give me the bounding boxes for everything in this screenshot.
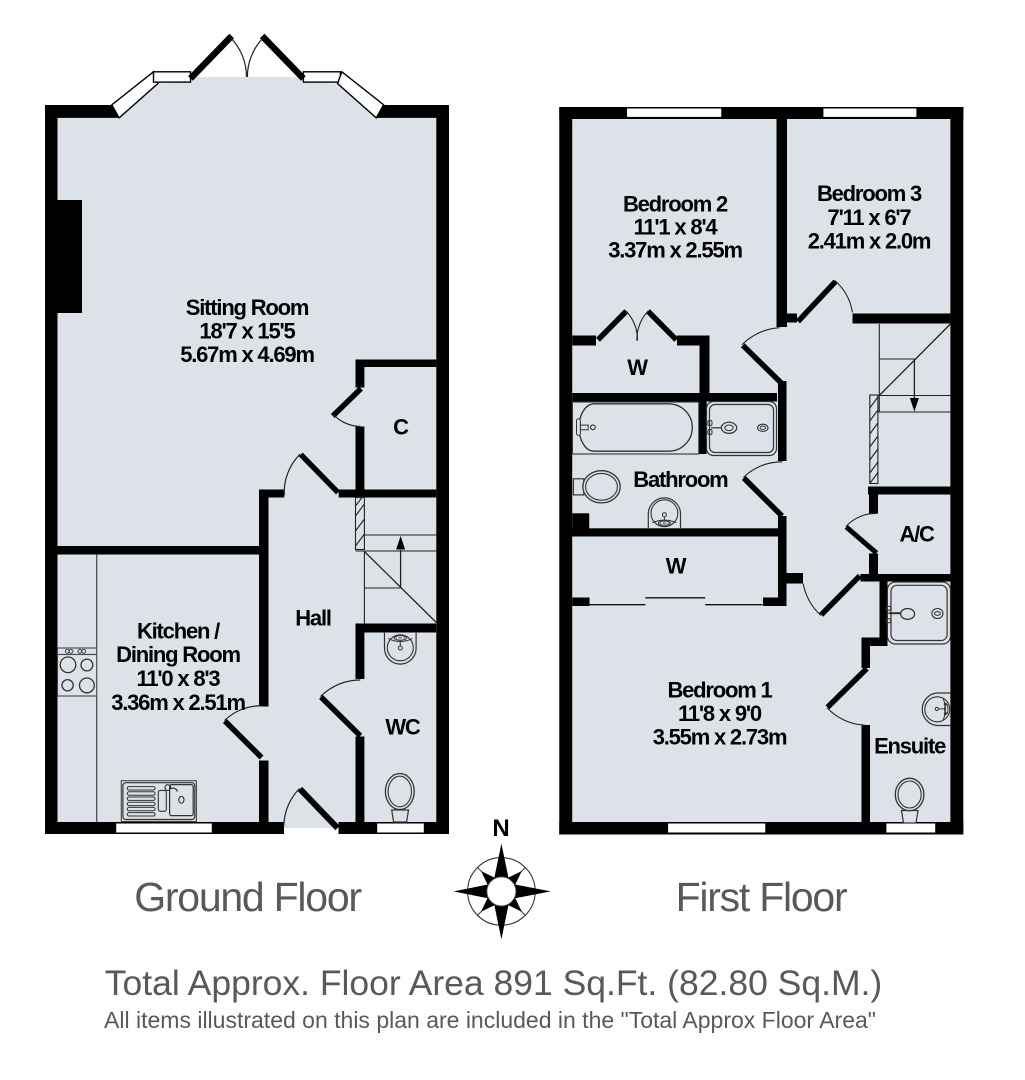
svg-text:11'1 x 8'4: 11'1 x 8'4 [634, 215, 719, 240]
svg-text:Bathroom: Bathroom [633, 467, 728, 492]
svg-text:Bedroom 1: Bedroom 1 [667, 678, 772, 703]
svg-text:2.41m x 2.0m: 2.41m x 2.0m [808, 229, 931, 254]
svg-text:Total Approx. Floor Area 891 S: Total Approx. Floor Area 891 Sq.Ft. (82.… [105, 963, 882, 1003]
svg-text:Dining Room: Dining Room [116, 642, 240, 667]
svg-text:3.36m x 2.51m: 3.36m x 2.51m [111, 690, 245, 715]
svg-text:5.67m x 4.69m: 5.67m x 4.69m [180, 342, 314, 367]
svg-text:Kitchen /: Kitchen / [137, 619, 220, 644]
svg-text:11'8 x 9'0: 11'8 x 9'0 [678, 701, 762, 726]
svg-text:W: W [666, 554, 687, 579]
svg-text:3.37m x 2.55m: 3.37m x 2.55m [608, 238, 742, 263]
svg-text:N: N [492, 815, 509, 842]
svg-text:7'11 x 6'7: 7'11 x 6'7 [828, 205, 912, 230]
svg-text:Bedroom 3: Bedroom 3 [817, 181, 922, 206]
svg-text:W: W [627, 355, 648, 380]
svg-text:3.55m x 2.73m: 3.55m x 2.73m [653, 725, 787, 750]
svg-text:All items illustrated on this: All items illustrated on this plan are i… [104, 1007, 876, 1033]
svg-text:Bedroom 2: Bedroom 2 [623, 192, 728, 217]
svg-text:Hall: Hall [295, 606, 331, 631]
svg-text:Ensuite: Ensuite [874, 733, 946, 758]
svg-text:18'7 x 15'5: 18'7 x 15'5 [199, 319, 295, 344]
svg-text:Sitting Room: Sitting Room [186, 295, 309, 320]
svg-text:Ground Floor: Ground Floor [134, 874, 361, 920]
svg-text:11'0 x 8'3: 11'0 x 8'3 [137, 666, 221, 691]
svg-text:WC: WC [385, 715, 421, 740]
svg-text:C: C [393, 415, 409, 440]
svg-text:A/C: A/C [899, 522, 935, 547]
svg-text:First Floor: First Floor [676, 874, 847, 920]
